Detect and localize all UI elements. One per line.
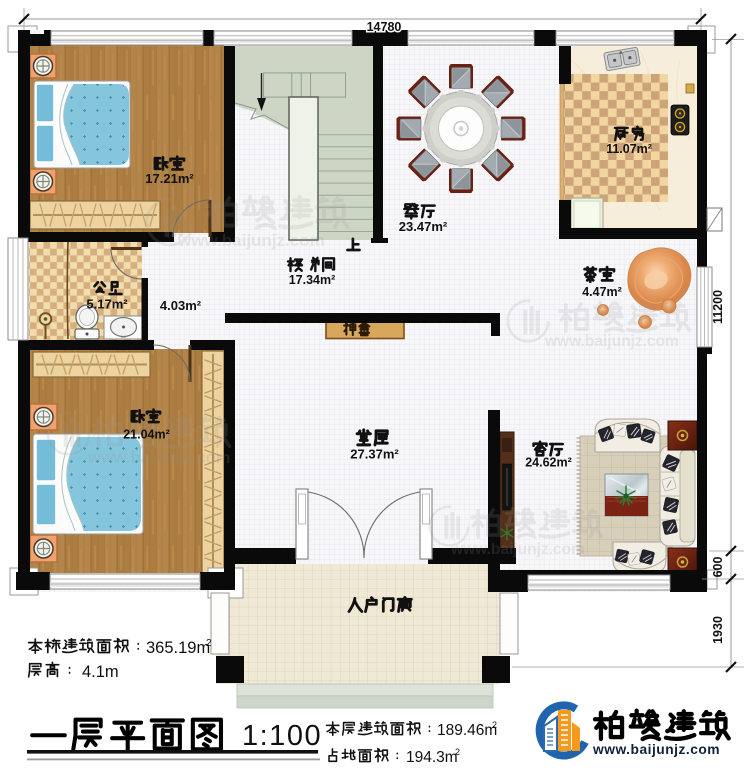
svg-text:14780: 14780 (367, 20, 402, 34)
svg-text:194.3m: 194.3m (406, 749, 458, 766)
svg-text:11200: 11200 (711, 290, 725, 324)
svg-text:www.baijunjz.com: www.baijunjz.com (592, 742, 720, 757)
svg-text:www.baijunjz.com: www.baijunjz.com (544, 333, 679, 350)
svg-text:www.baijunjz.com: www.baijunjz.com (87, 449, 230, 467)
svg-text:4.1m: 4.1m (82, 663, 119, 681)
svg-text:27.37m²: 27.37m² (350, 447, 399, 462)
svg-text:www.baijunjz.com: www.baijunjz.com (450, 541, 585, 558)
svg-text:189.46m: 189.46m (437, 722, 497, 739)
svg-text:2: 2 (455, 747, 460, 757)
svg-text:24.62m²: 24.62m² (525, 456, 572, 470)
svg-text:17.34m²: 17.34m² (289, 273, 336, 287)
svg-text:23.47m²: 23.47m² (399, 219, 448, 234)
svg-text:1:100: 1:100 (242, 720, 322, 752)
svg-text:2: 2 (492, 720, 497, 730)
svg-text:1930: 1930 (711, 616, 725, 644)
svg-text:2: 2 (206, 638, 212, 649)
svg-text:17.21m²: 17.21m² (145, 171, 194, 186)
svg-text:11.07m²: 11.07m² (606, 142, 652, 156)
svg-text:5.17m²: 5.17m² (86, 297, 128, 312)
svg-text:21.04m²: 21.04m² (123, 428, 170, 442)
svg-text:4.47m²: 4.47m² (582, 285, 622, 299)
svg-text:4.03m²: 4.03m² (160, 298, 202, 313)
svg-text:www.baijunjz.com: www.baijunjz.com (177, 231, 325, 250)
svg-text:600: 600 (711, 557, 725, 578)
svg-text:365.19m: 365.19m (146, 639, 210, 657)
